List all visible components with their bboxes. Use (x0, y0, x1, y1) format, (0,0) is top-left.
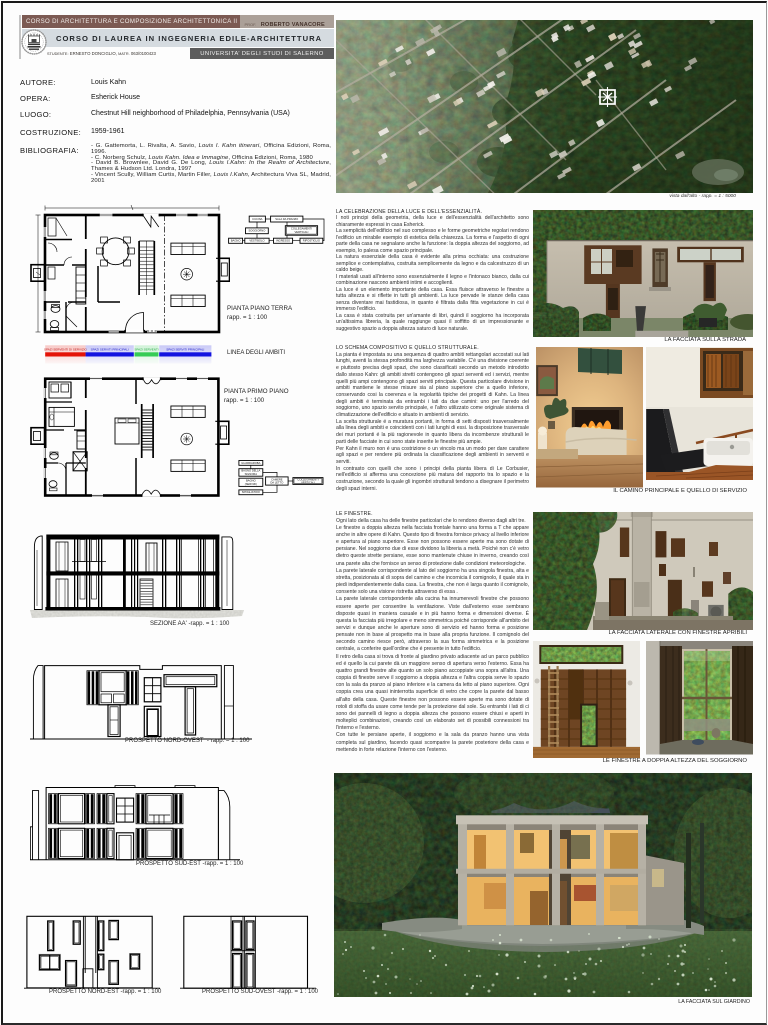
svg-text:RIPOSTIGLIO: RIPOSTIGLIO (303, 239, 320, 243)
svg-text:SPAZI SERVENTI DI SERVIZIO: SPAZI SERVENTI DI SERVIZIO (44, 348, 87, 352)
svg-text:CUCINA: CUCINA (252, 217, 263, 221)
svg-text:SPAZI SERVENTI: SPAZI SERVENTI (134, 348, 158, 352)
svg-text:SPAZI SERVITI PRINCIPALI: SPAZI SERVITI PRINCIPALI (166, 348, 204, 352)
svg-text:(SERVIZI): (SERVIZI) (245, 482, 257, 486)
svg-text:SIGNORA: SIGNORA (245, 472, 258, 476)
svg-text:SPAZI SERVITI PRINCIPALI: SPAZI SERVITI PRINCIPALI (91, 348, 129, 352)
svg-text:SALA DA PRANZO: SALA DA PRANZO (275, 217, 298, 221)
svg-text:INGRESSO: INGRESSO (276, 239, 290, 243)
svg-text:VESTIBOLO: VESTIBOLO (249, 239, 264, 243)
svg-text:GUARDAROBA: GUARDAROBA (241, 461, 260, 465)
svg-text:DA LETTO: DA LETTO (270, 481, 283, 485)
svg-text:SPOGLIATOIO: SPOGLIATOIO (242, 490, 260, 494)
svg-text:VERTICALI: VERTICALI (301, 481, 315, 485)
svg-text:BAGNO: BAGNO (231, 239, 241, 243)
svg-text:SOGGIORNO: SOGGIORNO (248, 229, 265, 233)
svg-text:VERTICALI: VERTICALI (295, 230, 309, 234)
